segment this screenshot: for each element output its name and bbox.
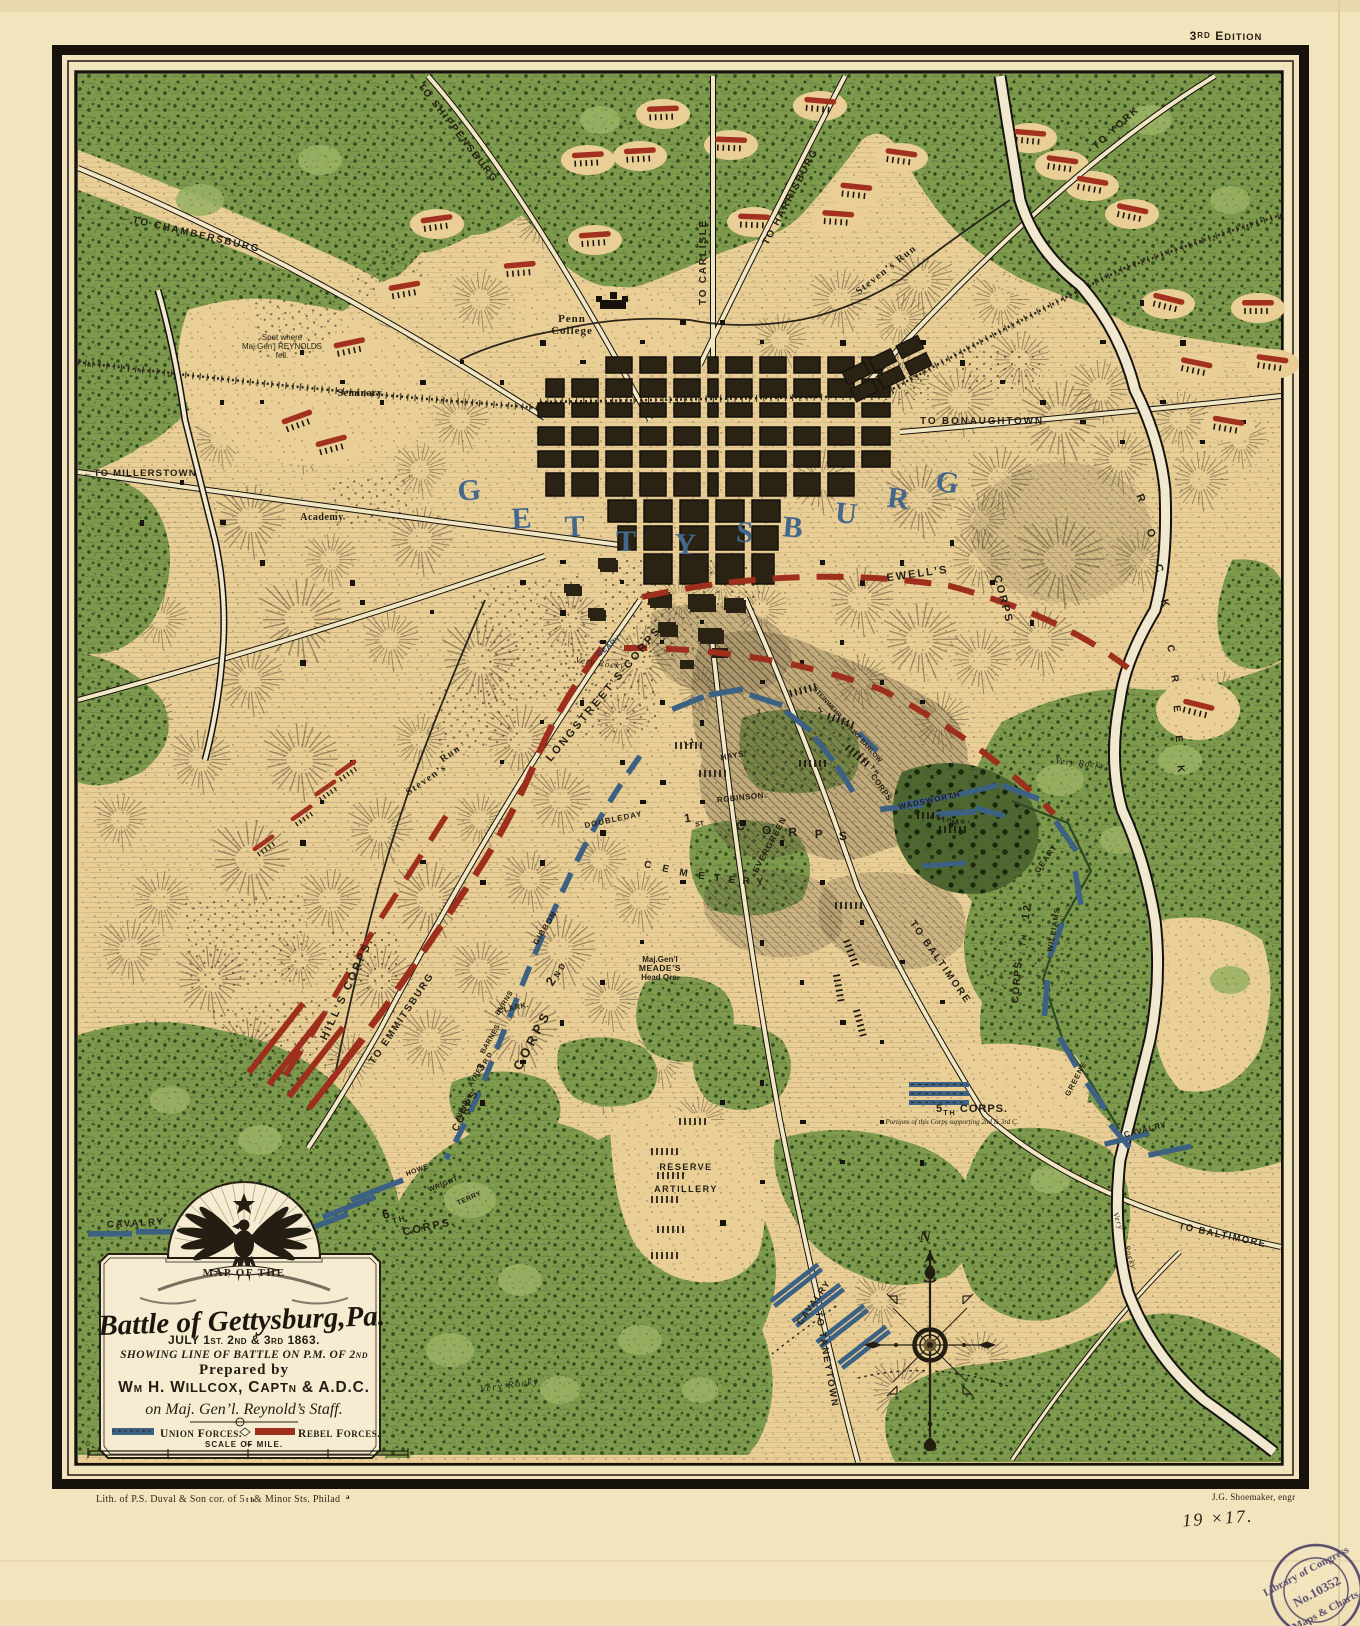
svg-text:TO BONAUGHTOWN: TO BONAUGHTOWN xyxy=(920,416,1044,427)
svg-text:REBEL FORCES.: REBEL FORCES. xyxy=(298,1428,381,1440)
svg-text:R: R xyxy=(1168,674,1180,685)
svg-text:J.G. Shoemaker, engr: J.G. Shoemaker, engr xyxy=(1212,1492,1295,1502)
svg-text:ARTILLERY: ARTILLERY xyxy=(654,1184,718,1194)
svg-text:Lith. of P.S. Duval & Son cor: Lith. of P.S. Duval & Son cor. of 5 xyxy=(96,1494,245,1505)
svg-text:N: N xyxy=(918,1229,932,1246)
svg-text:E: E xyxy=(697,870,707,882)
svg-text:T: T xyxy=(616,525,636,558)
svg-text:Spot where: Spot where xyxy=(262,333,303,342)
svg-text:Y: Y xyxy=(674,528,697,562)
svg-text:0: 0 xyxy=(86,1441,90,1448)
svg-text:Penn: Penn xyxy=(558,313,586,325)
svg-text:Prepared by: Prepared by xyxy=(199,1362,289,1378)
svg-text:U: U xyxy=(833,496,858,531)
svg-text:C: C xyxy=(736,819,748,834)
svg-text:K: K xyxy=(1175,765,1187,775)
svg-text:←TO MILLERSTOWN: ←TO MILLERSTOWN xyxy=(83,468,197,479)
svg-text:M: M xyxy=(678,867,690,880)
svg-text:Head Qrs.: Head Qrs. xyxy=(641,973,679,982)
svg-text:College: College xyxy=(551,325,593,337)
svg-text:TH: TH xyxy=(943,1110,956,1117)
svg-text:R: R xyxy=(885,481,911,516)
svg-text:S: S xyxy=(839,829,849,843)
svg-text:E: E xyxy=(728,875,737,887)
svg-text:R: R xyxy=(788,825,800,840)
svg-text:T: T xyxy=(714,873,723,885)
svg-text:WM H. WILLCOX, CAPTN & A.D.C.: WM H. WILLCOX, CAPTN & A.D.C. xyxy=(118,1379,369,1396)
svg-text:1: 1 xyxy=(757,709,763,716)
svg-text:MAP OF THE: MAP OF THE xyxy=(203,1267,286,1279)
svg-text:Maj.Gen’l REYNOLDS: Maj.Gen’l REYNOLDS xyxy=(242,342,322,351)
svg-text:G: G xyxy=(933,465,961,501)
svg-text:UNION FORCES.: UNION FORCES. xyxy=(160,1428,242,1440)
svg-text:ST: ST xyxy=(695,820,706,828)
svg-text:R: R xyxy=(742,876,752,887)
svg-text:SHOWING LINE OF BATTLE ON P.M.: SHOWING LINE OF BATTLE ON P.M. OF 2ND xyxy=(120,1349,368,1361)
svg-text:G: G xyxy=(456,473,482,508)
svg-text:on Maj. Gen’l. Reynold’s Staff: on Maj. Gen’l. Reynold’s Staff. xyxy=(145,1401,342,1418)
svg-text:E: E xyxy=(1170,705,1182,715)
svg-text:MEADE’S: MEADE’S xyxy=(639,963,681,973)
svg-text:Seminary: Seminary xyxy=(337,388,382,399)
svg-text:B: B xyxy=(781,510,804,545)
svg-text:RESERVE: RESERVE xyxy=(659,1162,712,1172)
svg-text:Academy: Academy xyxy=(300,512,344,523)
svg-text:Portions of this Corps support: Portions of this Corps supporting 2nd & … xyxy=(885,1118,1019,1126)
svg-text:SCALE OF MILE.: SCALE OF MILE. xyxy=(205,1440,283,1449)
svg-text:P: P xyxy=(814,827,825,842)
svg-text:a: a xyxy=(346,1493,352,1501)
svg-text:TO CARLISLE: TO CARLISLE xyxy=(698,219,709,305)
svg-text:½: ½ xyxy=(245,1440,251,1448)
svg-text:Y: Y xyxy=(757,877,766,888)
svg-text:& Minor Sts. Philad: & Minor Sts. Philad xyxy=(254,1494,340,1505)
svg-text:S: S xyxy=(735,515,754,549)
svg-text:T: T xyxy=(564,510,585,544)
svg-text:CORPS.: CORPS. xyxy=(960,1103,1008,1115)
svg-text:E: E xyxy=(1173,735,1185,745)
svg-text:fell.: fell. xyxy=(276,351,288,360)
svg-text:E: E xyxy=(511,502,533,536)
